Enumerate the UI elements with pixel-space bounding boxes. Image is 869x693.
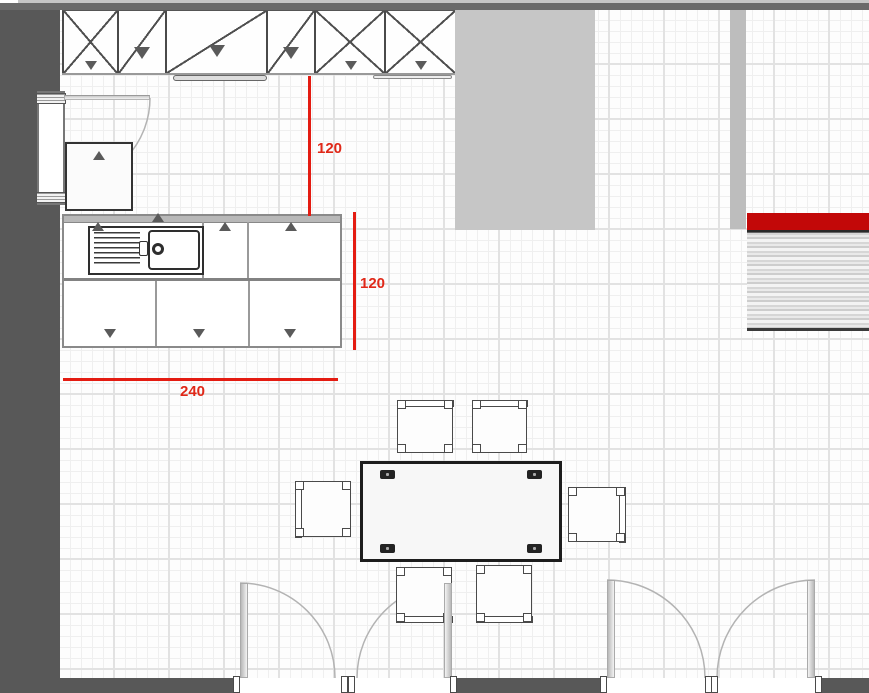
wall-north bbox=[0, 3, 869, 10]
chair[interactable] bbox=[295, 481, 351, 537]
wall-cabinet-double[interactable] bbox=[384, 11, 457, 73]
chair-leg bbox=[295, 528, 304, 537]
chair-leg bbox=[396, 567, 405, 576]
chair-leg bbox=[518, 400, 527, 409]
cabinet-divider bbox=[248, 281, 250, 346]
chair-leg bbox=[616, 533, 625, 542]
wall-cabinet-double[interactable] bbox=[314, 11, 384, 73]
dimension-label: 240 bbox=[180, 383, 205, 400]
dimension-line-vertical-2 bbox=[353, 212, 356, 350]
wall-south-middle bbox=[457, 678, 600, 693]
tall-unit-block[interactable] bbox=[455, 10, 595, 230]
cabinet-divider bbox=[247, 222, 249, 278]
chair-leg bbox=[342, 528, 351, 537]
chair-leg bbox=[342, 481, 351, 490]
fridge-hinge-cap bbox=[36, 93, 66, 104]
door-frame bbox=[815, 676, 822, 693]
counter-mid-divider bbox=[64, 278, 340, 281]
wall-south-right bbox=[822, 678, 869, 693]
floorplan-canvas: 120 120 240 bbox=[0, 0, 869, 693]
corner-base-cabinet[interactable] bbox=[65, 142, 133, 211]
chair[interactable] bbox=[397, 400, 453, 453]
wall-cabinet-flap[interactable] bbox=[117, 11, 165, 73]
door-front-indicator-icon bbox=[193, 329, 205, 338]
sink-unit[interactable] bbox=[88, 226, 204, 275]
door-frame bbox=[600, 676, 607, 693]
door-front-indicator-icon bbox=[283, 47, 299, 59]
door-front-indicator-icon bbox=[415, 61, 427, 70]
door-front-indicator-icon bbox=[152, 213, 164, 222]
chair-leg bbox=[616, 487, 625, 496]
chair-leg bbox=[568, 533, 577, 542]
door-front-indicator-icon bbox=[219, 222, 231, 231]
table-leg bbox=[380, 544, 395, 553]
door-frame bbox=[348, 676, 355, 693]
fridge-hinge-cap bbox=[36, 192, 66, 203]
chair-leg bbox=[443, 567, 452, 576]
chair-leg bbox=[444, 400, 453, 409]
chair-leg bbox=[397, 400, 406, 409]
door-leaf[interactable] bbox=[807, 580, 815, 678]
chair[interactable] bbox=[476, 565, 532, 622]
door-front-indicator-icon bbox=[93, 151, 105, 160]
table-leg bbox=[380, 470, 395, 479]
chair-leg bbox=[476, 565, 485, 574]
cabinet-divider bbox=[155, 281, 157, 346]
sideboard-red-front[interactable] bbox=[747, 213, 869, 232]
door-front-indicator-icon bbox=[209, 45, 225, 57]
door-frame bbox=[711, 676, 718, 693]
chair-leg bbox=[568, 487, 577, 496]
door-front-indicator-icon bbox=[285, 222, 297, 231]
door-frame bbox=[450, 676, 457, 693]
door-front-indicator-icon bbox=[284, 329, 296, 338]
table-leg bbox=[527, 544, 542, 553]
chair-leg bbox=[472, 444, 481, 453]
chair-leg bbox=[476, 613, 485, 622]
wall-cabinet-wide-flap[interactable] bbox=[165, 11, 265, 73]
dimension-label: 120 bbox=[360, 275, 385, 292]
door-front-indicator-icon bbox=[345, 61, 357, 70]
chair[interactable] bbox=[472, 400, 527, 453]
cabinet-light-pelmet bbox=[173, 75, 267, 81]
door-leaf[interactable] bbox=[444, 583, 452, 678]
chair-leg bbox=[396, 613, 405, 622]
door-leaf[interactable] bbox=[240, 583, 248, 678]
fridge[interactable] bbox=[37, 91, 65, 205]
dimension-line-vertical-1 bbox=[308, 76, 311, 216]
drainboard bbox=[94, 232, 140, 265]
wall-south-left bbox=[0, 678, 233, 693]
door-frame bbox=[341, 676, 348, 693]
chair-leg bbox=[444, 444, 453, 453]
drain-hole-icon bbox=[152, 243, 164, 255]
cabinet-light-pelmet bbox=[373, 75, 452, 79]
door-frame bbox=[233, 676, 240, 693]
dining-table[interactable] bbox=[360, 461, 562, 562]
dimension-label: 120 bbox=[317, 140, 342, 157]
dimension-line-horizontal bbox=[63, 378, 338, 381]
chair[interactable] bbox=[568, 487, 625, 542]
chair-leg bbox=[472, 400, 481, 409]
chair-leg bbox=[397, 444, 406, 453]
wall-cabinet-run[interactable] bbox=[62, 10, 457, 75]
chair-leg bbox=[518, 444, 527, 453]
sink-counter[interactable] bbox=[62, 214, 342, 348]
door-leaf[interactable] bbox=[607, 580, 615, 678]
table-leg bbox=[527, 470, 542, 479]
chair-leg bbox=[523, 565, 532, 574]
door-front-indicator-icon bbox=[134, 47, 150, 59]
corner-door-leaf[interactable] bbox=[64, 95, 150, 100]
door-front-indicator-icon bbox=[104, 329, 116, 338]
wall-cabinet-flap[interactable] bbox=[266, 11, 314, 73]
chair-leg bbox=[295, 481, 304, 490]
door-front-indicator-icon bbox=[92, 222, 104, 231]
door-front-indicator-icon bbox=[85, 61, 97, 70]
wall-pillar bbox=[730, 10, 746, 229]
wall-cabinet-corner[interactable] bbox=[62, 11, 117, 73]
sink-divider-tab bbox=[139, 241, 148, 256]
sideboard-wood-top[interactable] bbox=[747, 232, 869, 331]
chair-leg bbox=[523, 613, 532, 622]
